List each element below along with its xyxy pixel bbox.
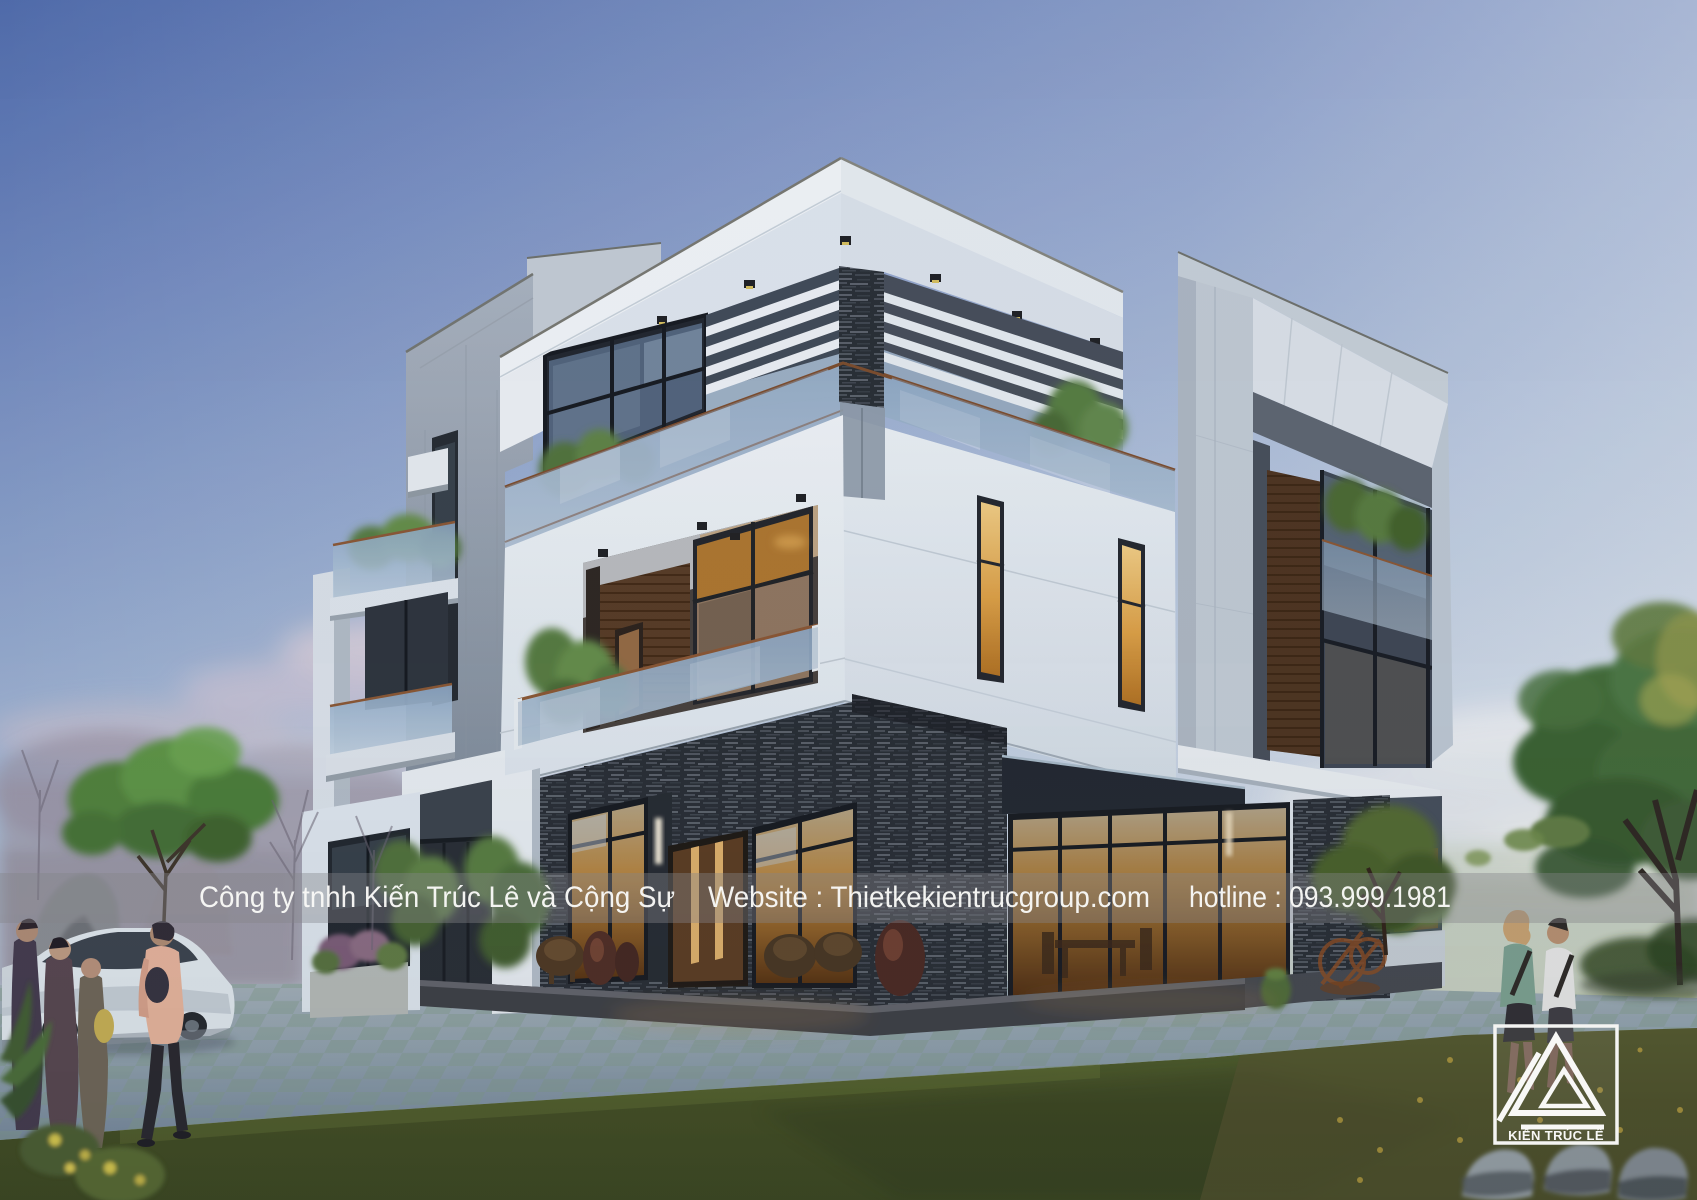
svg-text:KIẾN TRÚC LÊ: KIẾN TRÚC LÊ: [1508, 1128, 1604, 1143]
svg-text:Công ty tnhh Kiến Trúc Lê và C: Công ty tnhh Kiến Trúc Lê và Cộng Sự: [199, 881, 675, 914]
svg-text:hotline : 093.999.1981: hotline : 093.999.1981: [1189, 881, 1451, 914]
svg-text:Website : Thietkekientrucgroup: Website : Thietkekientrucgroup.com: [708, 881, 1150, 914]
